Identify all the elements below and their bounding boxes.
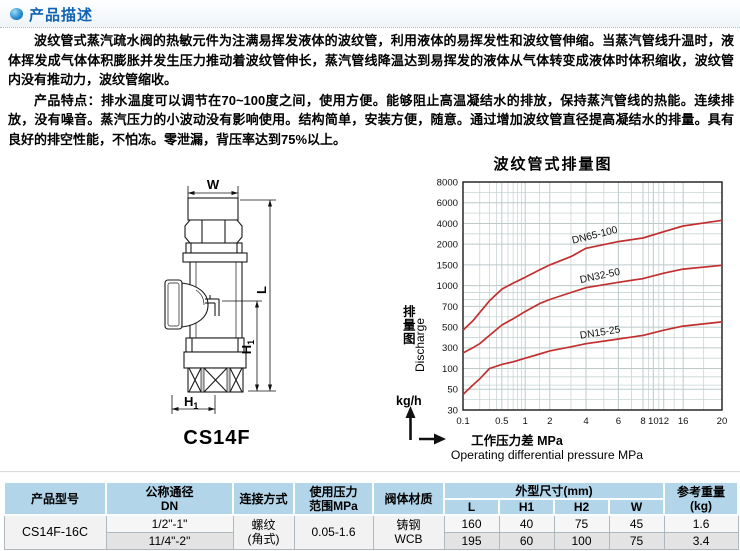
x-tick-label: 10	[648, 416, 659, 427]
y-tick-label: 6000	[437, 198, 458, 209]
header-dim-h2: H2	[554, 499, 609, 515]
x-tick-label: 4	[583, 416, 589, 427]
upper-flange	[186, 243, 242, 253]
dim-label-h1-bottom: H1	[184, 394, 198, 411]
right-arrow-icon	[419, 434, 446, 445]
y-tick-label: 8000	[437, 177, 458, 188]
cell-dn-row2: 11/4"-2"	[106, 532, 233, 549]
cell-model: CS14F-16C	[4, 515, 106, 549]
chart-plot-area: 8000600040002000150010007005003001005030…	[437, 177, 728, 427]
y-axis-label-en: Discharge	[413, 318, 427, 372]
y-axis-unit: kg/h	[396, 394, 422, 408]
y-tick-label: 4000	[437, 219, 458, 230]
y-tick-label: 500	[442, 322, 458, 333]
header-dim-l: L	[444, 499, 499, 515]
valve-technical-drawing: W L H1 H1 CS14F	[148, 172, 292, 452]
product-description-text: 波纹管式蒸汽疏水阀的热敏元件为注满易挥发液体的波纹管，利用液体的易挥发性和波纹管…	[8, 31, 734, 150]
cell-pressure: 0.05-1.6	[294, 515, 373, 549]
features-text: 排水温度可以调节在70~100度之间，使用方便。能够阻止高温凝结水的排放，保持蒸…	[8, 93, 734, 147]
discharge-chart: 8000600040002000150010007005003001005030…	[395, 170, 740, 468]
cell-w-row2: 75	[609, 532, 664, 549]
header-body-material: 阀体材质	[373, 482, 444, 515]
lower-flange	[186, 338, 244, 352]
dim-label-l: L	[254, 286, 269, 294]
cell-w-row1: 45	[609, 515, 664, 532]
header-dim-w: W	[609, 499, 664, 515]
header-pressure: 使用压力范围MPa	[294, 482, 373, 515]
y-tick-label: 2000	[437, 240, 458, 251]
cell-h1-row1: 40	[499, 515, 554, 532]
up-arrow-icon	[406, 406, 416, 440]
y-tick-label: 1000	[437, 281, 458, 292]
y-tick-label: 100	[442, 364, 458, 375]
section-title: 产品描述	[29, 4, 93, 25]
valve-outline	[165, 198, 247, 392]
x-axis-label-en: Operating differential pressure MPa	[451, 448, 643, 462]
x-tick-label: 0.1	[456, 416, 469, 427]
header-dn: 公称通径DN	[106, 482, 233, 515]
y-tick-label: 1500	[437, 260, 458, 271]
valve-cap	[188, 198, 238, 220]
header-model: 产品型号	[4, 482, 106, 515]
x-axis-label-cn: 工作压力差 MPa	[471, 433, 564, 448]
cell-dn-row1: 1/2"-1"	[106, 515, 233, 532]
header-connection: 连接方式	[233, 482, 294, 515]
y-tick-label: 50	[447, 385, 458, 396]
x-tick-label: 0.5	[495, 416, 508, 427]
cell-weight-row1: 1.6	[664, 515, 738, 532]
header-weight: 参考重量(kg)	[664, 482, 738, 515]
cell-l-row1: 160	[444, 515, 499, 532]
bullet-ball-icon	[10, 8, 23, 20]
base-block	[184, 352, 246, 368]
features-paragraph: 产品特点：排水温度可以调节在70~100度之间，使用方便。能够阻止高温凝结水的排…	[8, 91, 734, 150]
drawing-caption: CS14F	[183, 427, 250, 449]
header-dim-h1: H1	[499, 499, 554, 515]
x-tick-label: 16	[678, 416, 689, 427]
flange-step	[183, 253, 247, 262]
cell-connection: 螺纹(角式)	[233, 515, 294, 549]
section-divider	[0, 471, 740, 473]
hex-nut	[185, 220, 242, 243]
x-tick-label: 8	[640, 416, 645, 427]
bonnet-plate-inner	[168, 283, 179, 326]
cell-weight-row2: 3.4	[664, 532, 738, 549]
cell-h2-row1: 75	[554, 515, 609, 532]
cell-body-material: 铸钢WCB	[373, 515, 444, 549]
product-description-page: 产品描述 波纹管式蒸汽疏水阀的热敏元件为注满易挥发液体的波纹管，利用液体的易挥发…	[0, 0, 740, 551]
features-label: 产品特点：	[34, 93, 101, 108]
x-tick-label: 20	[717, 416, 728, 427]
x-tick-label: 1	[522, 416, 527, 427]
x-tick-label: 12	[658, 416, 669, 427]
header-dimensions: 外型尺寸(mm)	[444, 482, 664, 499]
y-tick-label: 30	[447, 405, 458, 416]
x-tick-label: 2	[547, 416, 552, 427]
cell-h1-row2: 60	[499, 532, 554, 549]
cell-h2-row2: 100	[554, 532, 609, 549]
section-header: 产品描述	[0, 0, 740, 28]
x-tick-label: 6	[616, 416, 621, 427]
description-paragraph: 波纹管式蒸汽疏水阀的热敏元件为注满易挥发液体的波纹管，利用液体的易挥发性和波纹管…	[8, 31, 734, 90]
strainer-screen	[188, 368, 243, 392]
y-tick-label: 300	[442, 343, 458, 354]
dim-label-w: W	[207, 177, 220, 192]
spec-table: 产品型号 公称通径DN 连接方式 使用压力范围MPa 阀体材质 外型尺寸(mm)…	[3, 481, 739, 550]
cell-l-row2: 195	[444, 532, 499, 549]
y-tick-label: 700	[442, 302, 458, 313]
